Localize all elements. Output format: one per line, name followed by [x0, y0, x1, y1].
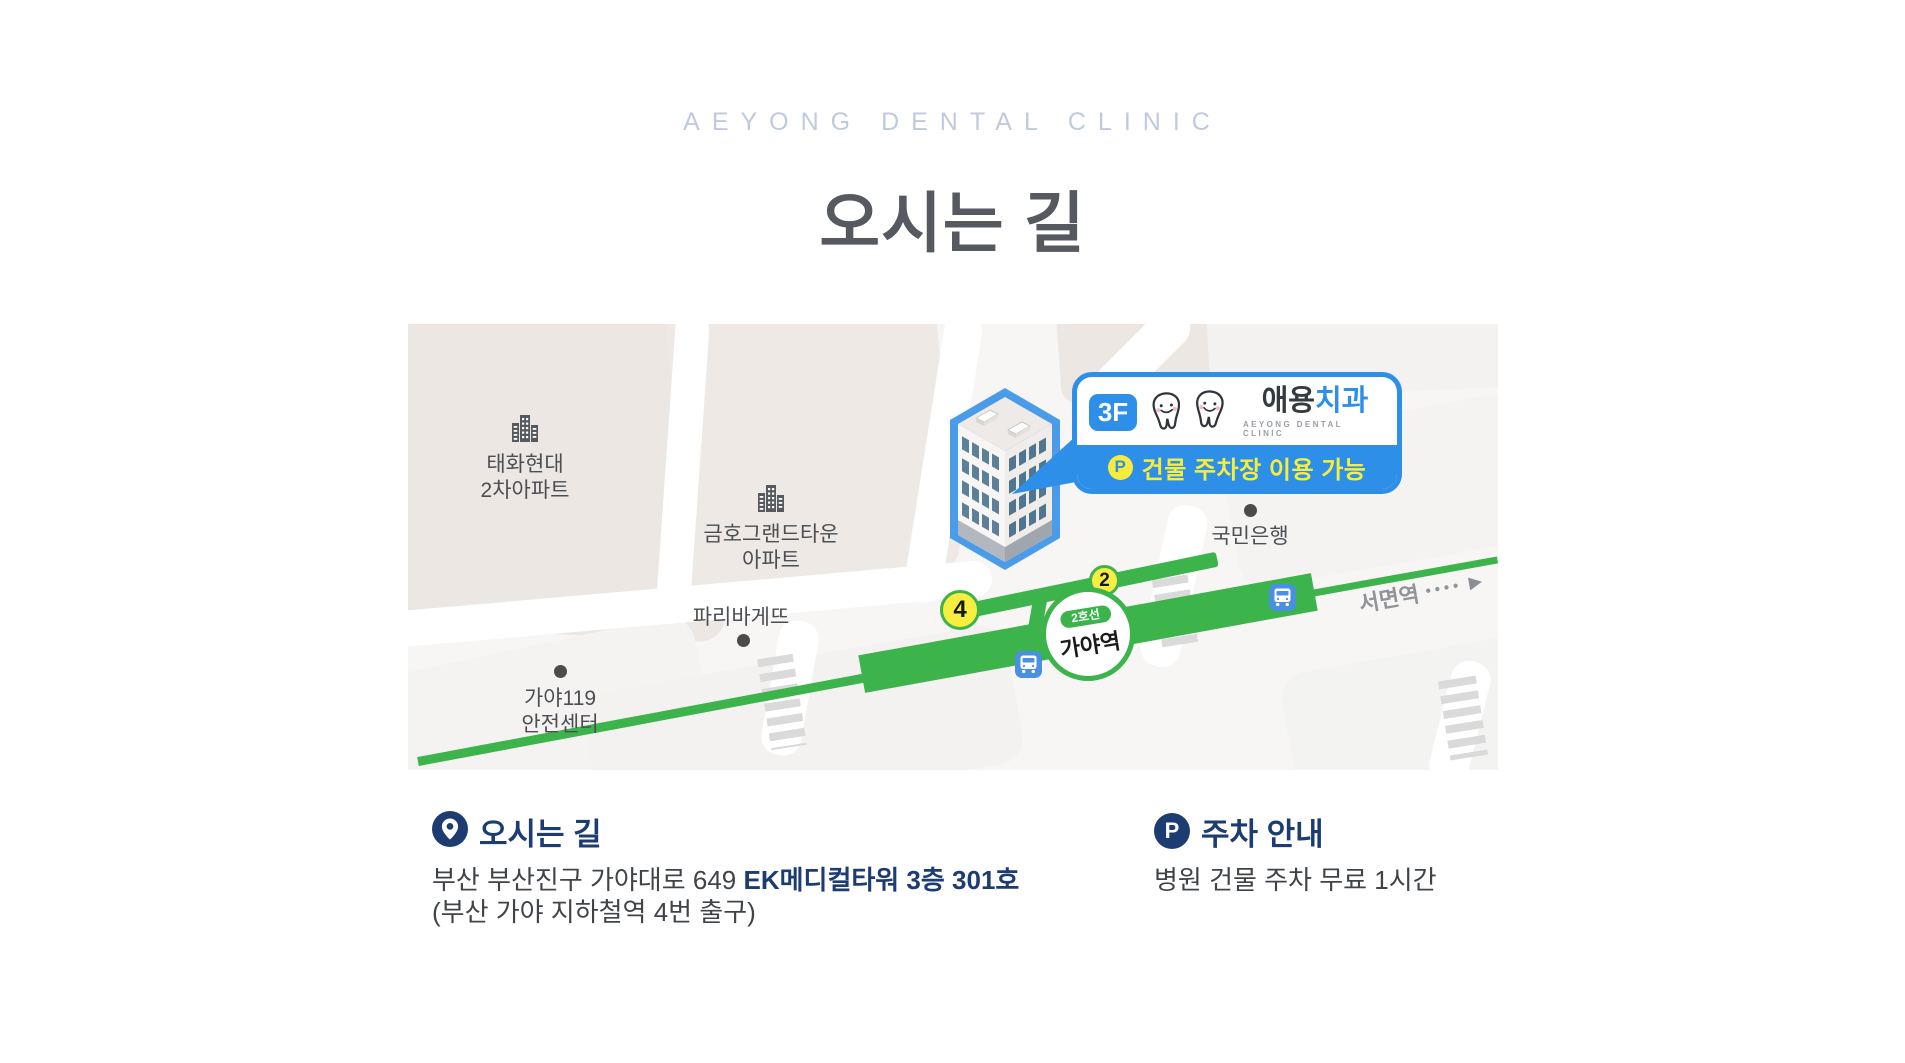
- location-pin-icon: [432, 811, 468, 852]
- parking-heading-row: P 주차 안내: [1154, 812, 1437, 850]
- parking-banner: P 건물 주차장 이용 가능: [1077, 445, 1397, 489]
- label-apartment2: 금호그랜드타운 아파트: [671, 522, 871, 575]
- directions-heading: 오시는 길: [479, 809, 602, 854]
- label-apartment1: 태화현대 2차아파트: [445, 452, 605, 505]
- label-apartment1-line2: 2차아파트: [445, 478, 605, 504]
- address-line1: 부산 부산진구 가야대로 649 EK메디컬타워 3층 301호: [432, 865, 1019, 897]
- bus-stop-icon: [1015, 651, 1042, 678]
- callout-box: 3F: [1072, 372, 1402, 494]
- parking-banner-text: 건물 주차장 이용 가능: [1142, 450, 1367, 485]
- exit-4-badge: 4: [940, 590, 980, 630]
- clinic-name-suffix: 치과: [1315, 385, 1368, 417]
- poi-dot-bank: [1244, 504, 1257, 517]
- parking-body: 병원 건물 주차 무료 1시간: [1154, 865, 1437, 897]
- directions-heading-row: 오시는 길: [432, 812, 1019, 850]
- label-apartment2-line2: 아파트: [671, 548, 871, 574]
- apartment-building-icon: [507, 412, 543, 451]
- label-apartment2-line1: 금호그랜드타운: [671, 522, 871, 548]
- clinic-name-block: 애용치과 AEYONG DENTAL CLINIC: [1243, 387, 1387, 438]
- teeth-logo-icon: [1146, 385, 1232, 440]
- label-fire-station: 가야119 안전센터: [470, 686, 650, 739]
- directions-section: 오시는 길 부산 부산진구 가야대로 649 EK메디컬타워 3층 301호 (…: [432, 812, 1019, 928]
- label-bakery: 파리바게뜨: [661, 605, 821, 631]
- page-title: 오시는 길: [0, 170, 1905, 266]
- label-bank: 국민은행: [1160, 524, 1340, 550]
- gaya-station-marker: 2호선 가야역: [1041, 587, 1135, 681]
- poi-dot-fire-station: [554, 665, 567, 678]
- address-regular: 부산 부산진구 가야대로 649: [432, 865, 743, 895]
- clinic-subtitle: AEYONG DENTAL CLINIC: [0, 108, 1905, 137]
- clinic-name-sub: AEYONG DENTAL CLINIC: [1243, 420, 1387, 438]
- station-inner: 2호선 가야역: [1054, 603, 1122, 664]
- parking-p-icon: P: [1108, 455, 1133, 480]
- direction-dots: ••••: [1424, 576, 1463, 599]
- callout-tail: [1012, 428, 1076, 494]
- location-map: 태화현대 2차아파트 금호그랜드타운 아파트 파리바게뜨 가야119 안전센터 …: [408, 324, 1498, 770]
- callout-header: 3F: [1077, 377, 1397, 445]
- label-fire-line1: 가야119: [470, 686, 650, 712]
- label-apartment1-line1: 태화현대: [445, 452, 605, 478]
- apartment-building-icon: [753, 482, 789, 521]
- parking-heading: 주차 안내: [1201, 809, 1324, 854]
- clinic-callout: 3F: [1072, 372, 1402, 494]
- parking-section: P 주차 안내 병원 건물 주차 무료 1시간: [1154, 812, 1437, 897]
- directions-address: 부산 부산진구 가야대로 649 EK메디컬타워 3층 301호 (부산 가야 …: [432, 865, 1019, 928]
- address-bold: EK메디컬타워 3층 301호: [743, 865, 1019, 895]
- address-note: (부산 가야 지하철역 4번 출구): [432, 897, 1019, 929]
- station-name: 가야역: [1057, 623, 1122, 664]
- poi-dot-bakery: [737, 634, 750, 647]
- bus-stop-icon: [1269, 584, 1296, 611]
- clinic-name: 애용치과: [1262, 387, 1369, 416]
- clinic-name-prefix: 애용: [1262, 385, 1315, 417]
- label-fire-line2: 안전센터: [470, 712, 650, 738]
- page: AEYONG DENTAL CLINIC 오시는 길: [0, 0, 1905, 1063]
- floor-3f-badge: 3F: [1089, 394, 1137, 431]
- parking-icon: P: [1154, 813, 1190, 849]
- direction-arrow-icon: ▶: [1467, 571, 1483, 593]
